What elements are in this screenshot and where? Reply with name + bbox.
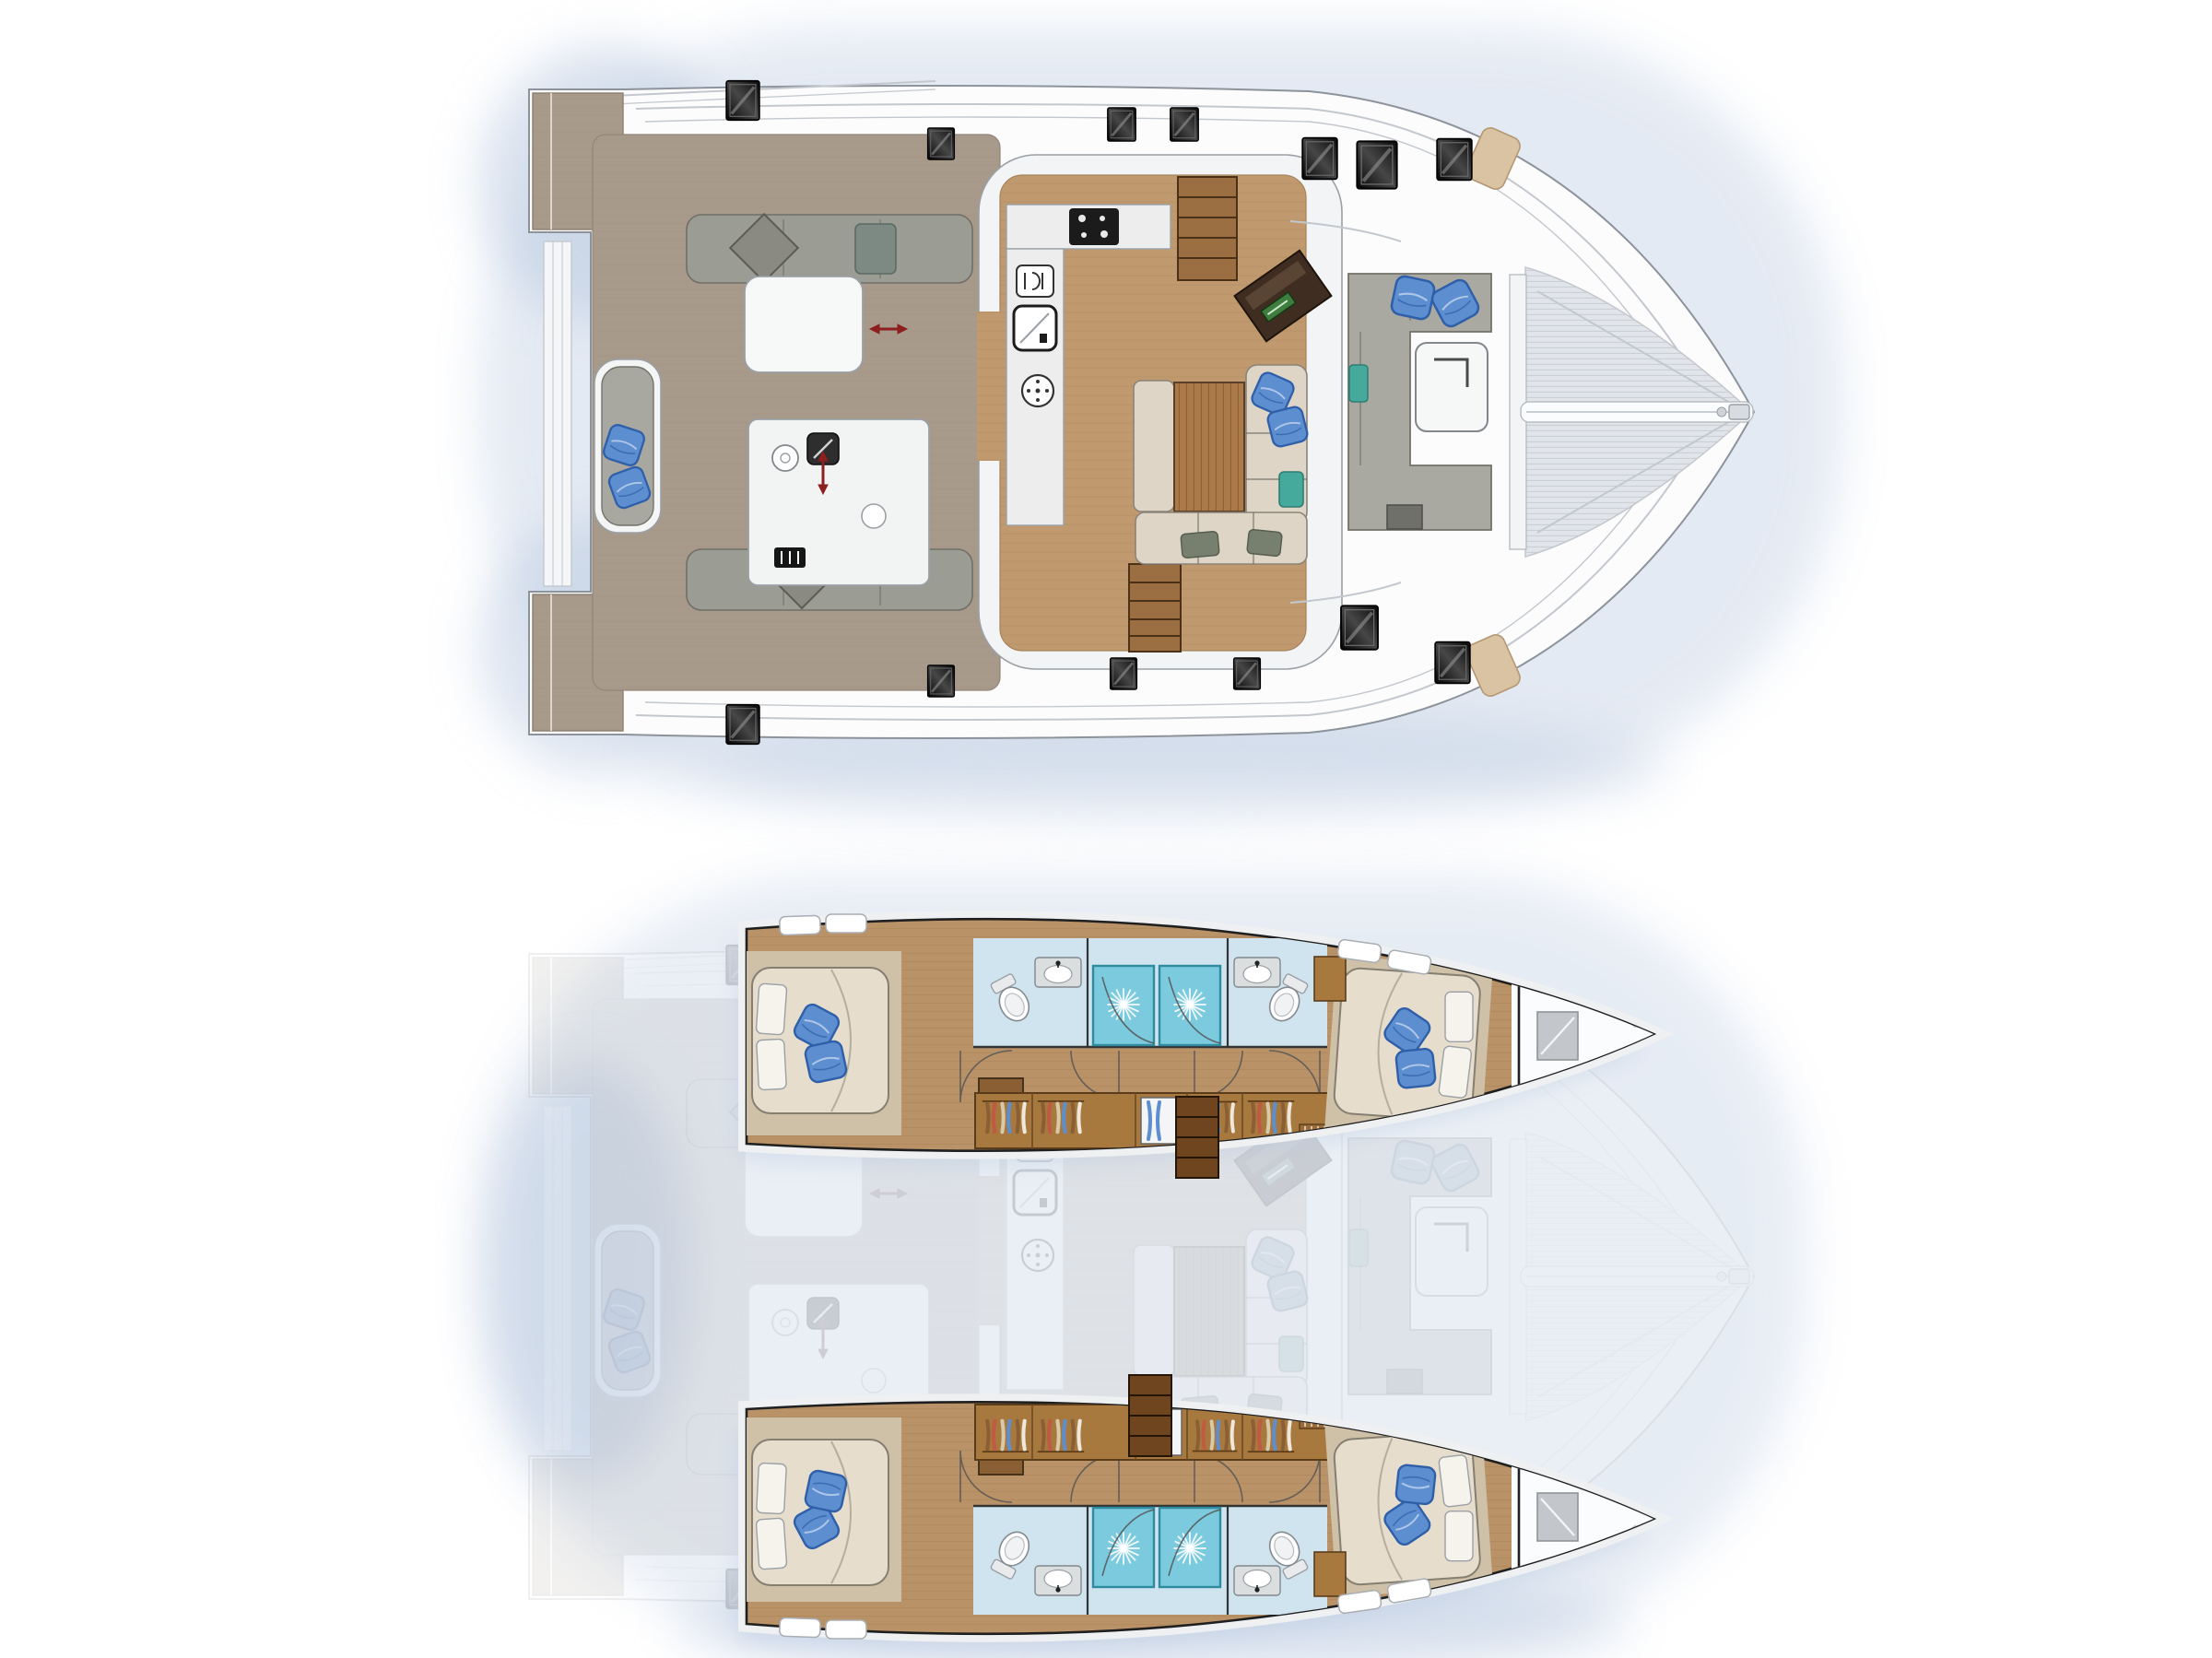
sage-cushion [1181,531,1219,558]
deck-hatch-icon [1302,138,1337,180]
wash-basin-icon [1234,958,1280,987]
deck-hatch-icon [726,705,759,744]
deck-hatch-icon [1435,642,1470,684]
anchor-roller-icon [1729,405,1749,419]
outdoor-sink-icon [772,445,798,471]
deck-hatch-icon [1357,141,1396,188]
forward-cockpit-table [1416,343,1488,431]
hull-window [826,914,866,933]
white-pillow [1439,1046,1472,1099]
blue-pillow-icon [1266,406,1309,448]
aft-bench-port [687,214,972,283]
oven-icon [1014,306,1056,350]
deck-hatch-icon [1234,658,1261,689]
aft-cabin [743,951,901,1135]
white-pillow [757,1039,787,1089]
deck-hatch-icon [1437,139,1472,181]
dinette-table [1174,382,1244,512]
starboard-companionway-stairs [1129,1375,1171,1456]
sage-cushion [1247,529,1283,557]
deck-hatch-icon [726,81,759,120]
catamaran-floorplan-svg [0,0,2212,1658]
wash-basin-icon [1035,958,1081,987]
teal-cushion [1349,365,1368,402]
control-pad-icon [774,547,806,568]
sink-dial-icon [1022,375,1053,406]
deck-hatch-icon [1171,108,1198,141]
blue-pillow-icon [1390,275,1436,321]
teal-cushion [1279,472,1303,507]
hull-window [780,915,821,935]
deck-hatch-icon [1108,108,1135,141]
bathrooms [973,938,1327,1047]
forward-cockpit [1348,274,1491,530]
cooktop-icon [1069,208,1119,245]
cockpit-table [745,276,863,372]
bowsprit [1521,402,1753,422]
deck-hatch-icon [1111,658,1137,689]
white-pillow [1445,992,1473,1041]
blue-pillow-icon [804,1040,847,1083]
stairs-to-port-hull [1178,177,1237,280]
dinette-chaise [1134,381,1174,512]
stool [862,504,886,528]
seat-cushion [855,224,896,274]
port-companionway-stairs [1176,1097,1218,1178]
saloon-door-gap [977,312,1003,461]
deck-hatch-icon [1341,606,1378,650]
deck-hatch-icon [928,128,955,159]
transom-steps [544,241,571,586]
white-pillow [756,983,787,1035]
outdoor-galley [748,419,929,585]
cockpit-lounge-port [594,359,661,533]
dinette [1134,365,1309,564]
seat-step [1387,505,1422,529]
forward-shelf [1314,957,1346,1001]
stairs-to-starboard-hull [1129,564,1181,652]
blue-pillow-icon [1395,1048,1436,1088]
deck-hatch-icon [928,665,955,697]
coffee-machine-icon [1017,265,1053,297]
floorplan-canvas: Catamaran yacht floor plan — upper deck … [0,0,2212,1658]
accommodation-plan [529,914,1754,1651]
